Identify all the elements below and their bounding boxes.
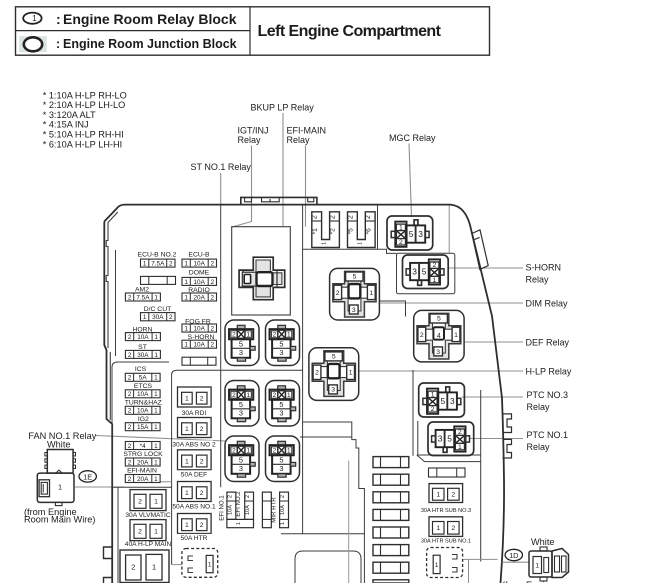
svg-text:7.5A: 7.5A — [151, 261, 165, 268]
svg-text:ETCS: ETCS — [134, 383, 153, 390]
svg-text:Engine Room Relay Block: Engine Room Relay Block — [63, 11, 237, 27]
svg-text:30A HTR SUB NO.1: 30A HTR SUB NO.1 — [421, 539, 471, 545]
svg-text:2: 2 — [128, 294, 132, 301]
svg-text:30A RDI: 30A RDI — [182, 410, 207, 417]
svg-text:10A: 10A — [245, 505, 251, 515]
svg-text:2: 2 — [312, 215, 319, 219]
svg-text:20A: 20A — [137, 476, 149, 483]
svg-text:2: 2 — [200, 458, 204, 465]
svg-text:1: 1 — [349, 370, 353, 377]
svg-text:MIR HTR: MIR HTR — [271, 497, 278, 523]
svg-text:50A DEF: 50A DEF — [181, 471, 207, 478]
svg-text:2: 2 — [431, 406, 435, 413]
svg-text:2: 2 — [128, 424, 132, 431]
svg-text:EFI NO.1: EFI NO.1 — [218, 495, 225, 521]
svg-text:EFI-MAIN: EFI-MAIN — [127, 468, 157, 475]
svg-text:2: 2 — [128, 459, 132, 466]
svg-text::: : — [56, 37, 60, 51]
svg-text:5: 5 — [353, 274, 357, 281]
svg-text:2: 2 — [169, 261, 173, 268]
svg-text:3: 3 — [412, 266, 417, 276]
svg-text:1: 1 — [154, 408, 158, 415]
svg-text:* 6:10A H-LP LH-HI: * 6:10A H-LP LH-HI — [43, 139, 123, 149]
svg-text:S-HORN: S-HORN — [526, 263, 562, 273]
svg-text:2: 2 — [227, 495, 233, 498]
svg-text:3: 3 — [331, 387, 335, 394]
svg-text:3: 3 — [352, 307, 356, 314]
svg-text:1: 1 — [184, 279, 188, 286]
svg-text:10A: 10A — [137, 391, 149, 398]
svg-text:2: 2 — [315, 370, 319, 377]
svg-text:10A: 10A — [194, 342, 206, 349]
svg-text:Relay: Relay — [238, 135, 262, 145]
svg-text:50A HTR: 50A HTR — [181, 535, 208, 542]
svg-text:1: 1 — [154, 352, 158, 359]
svg-text:1: 1 — [152, 563, 156, 572]
svg-text:2: 2 — [128, 352, 132, 359]
svg-text:* 2:10A H-LP LH-LO: * 2:10A H-LP LH-LO — [43, 100, 126, 110]
svg-text:IGT/INJ: IGT/INJ — [238, 126, 269, 136]
svg-text:3: 3 — [418, 229, 423, 239]
svg-text:2: 2 — [365, 215, 372, 219]
svg-text:10A: 10A — [227, 505, 233, 515]
svg-text:Left Engine Compartment: Left Engine Compartment — [258, 23, 442, 40]
svg-text:4: 4 — [437, 333, 441, 340]
svg-text:DEF Relay: DEF Relay — [526, 338, 570, 348]
svg-text:1D: 1D — [509, 551, 518, 560]
svg-text:Relay: Relay — [526, 275, 550, 285]
svg-text:1: 1 — [154, 334, 158, 341]
svg-text:2: 2 — [211, 294, 215, 301]
svg-text:1: 1 — [208, 562, 212, 569]
svg-text:2: 2 — [128, 375, 132, 382]
svg-text:5: 5 — [332, 354, 336, 361]
svg-text:30A ABS NO 2: 30A ABS NO 2 — [172, 441, 216, 448]
svg-text:1: 1 — [184, 294, 188, 301]
svg-text:3: 3 — [450, 396, 455, 406]
svg-text:1: 1 — [154, 443, 158, 450]
svg-text:Relay: Relay — [527, 442, 551, 452]
svg-text:1: 1 — [433, 277, 437, 284]
svg-text:1: 1 — [185, 426, 189, 433]
svg-text:1: 1 — [154, 391, 158, 398]
svg-text:2: 2 — [245, 495, 251, 498]
svg-text:* 1:10A H-LP RH-LO: * 1:10A H-LP RH-LO — [43, 90, 127, 100]
svg-text:BKUP LP Relay: BKUP LP Relay — [251, 103, 315, 113]
svg-text:DIM Relay: DIM Relay — [526, 299, 569, 309]
svg-text:2: 2 — [128, 408, 132, 415]
svg-text:10A: 10A — [137, 334, 149, 341]
svg-text:2: 2 — [138, 499, 142, 506]
svg-text:1: 1 — [185, 458, 189, 465]
svg-text:MGC Relay: MGC Relay — [389, 133, 436, 143]
svg-text:1: 1 — [435, 562, 439, 569]
svg-text:5: 5 — [440, 396, 445, 406]
svg-text:1: 1 — [535, 563, 539, 570]
svg-text:* 3:120A ALT: * 3:120A ALT — [43, 110, 96, 120]
svg-text:1: 1 — [32, 14, 37, 23]
svg-text:PTC NO.1: PTC NO.1 — [527, 430, 569, 440]
svg-text:H-LP Relay: H-LP Relay — [526, 367, 572, 377]
svg-text:White: White — [47, 440, 71, 450]
svg-text:1: 1 — [185, 490, 189, 497]
svg-text:1: 1 — [154, 459, 158, 466]
svg-text:1: 1 — [236, 522, 242, 525]
svg-text:Engine Room Junction Block: Engine Room Junction Block — [63, 37, 237, 51]
svg-text:D/C CUT: D/C CUT — [144, 306, 172, 313]
svg-text:2: 2 — [211, 279, 215, 286]
svg-text:White: White — [531, 537, 555, 547]
svg-text:2: 2 — [128, 476, 132, 483]
svg-text:2: 2 — [138, 529, 142, 536]
svg-text:2: 2 — [131, 563, 135, 572]
svg-text:1: 1 — [458, 444, 462, 451]
svg-text:1: 1 — [357, 242, 363, 245]
svg-text:1: 1 — [322, 242, 328, 245]
svg-text:2: 2 — [336, 290, 340, 297]
svg-text:ST NO.1 Relay: ST NO.1 Relay — [191, 162, 252, 172]
svg-text::: : — [56, 11, 61, 27]
svg-text:1: 1 — [143, 314, 147, 321]
svg-text:2: 2 — [280, 495, 286, 498]
svg-text:1: 1 — [143, 261, 147, 268]
svg-text:50A ABS NO.1: 50A ABS NO.1 — [172, 503, 216, 510]
svg-text:20A: 20A — [194, 294, 206, 301]
svg-text:TURN&HAZ: TURN&HAZ — [125, 399, 162, 406]
svg-text:Relay: Relay — [527, 402, 551, 412]
svg-text:1E: 1E — [83, 472, 92, 481]
svg-text:1: 1 — [58, 483, 62, 492]
svg-text:5: 5 — [437, 316, 441, 323]
svg-text:IG2: IG2 — [138, 416, 149, 423]
svg-text:1: 1 — [154, 294, 158, 301]
svg-text:1: 1 — [154, 424, 158, 431]
svg-text:*6: *6 — [365, 228, 372, 235]
svg-text:10A: 10A — [194, 279, 206, 286]
svg-text:10A: 10A — [137, 408, 149, 415]
svg-text:1: 1 — [436, 492, 440, 499]
svg-text:Room Main Wire): Room Main Wire) — [24, 515, 95, 525]
svg-text:3: 3 — [438, 433, 443, 443]
svg-text:3: 3 — [436, 349, 440, 356]
svg-text:2: 2 — [211, 342, 215, 349]
svg-text:*1: *1 — [312, 228, 319, 235]
svg-text:2: 2 — [451, 492, 455, 499]
svg-text:10A: 10A — [280, 505, 286, 515]
svg-text:5: 5 — [409, 229, 414, 239]
svg-text:ICS: ICS — [135, 366, 147, 373]
svg-text:2: 2 — [200, 426, 204, 433]
svg-text:STRG LOCK: STRG LOCK — [123, 451, 163, 458]
svg-text:1: 1 — [185, 396, 189, 403]
svg-text:30A: 30A — [137, 352, 149, 359]
svg-text:DOME: DOME — [189, 269, 210, 276]
svg-text:2: 2 — [451, 525, 455, 532]
svg-text:2: 2 — [128, 334, 132, 341]
svg-text:* 5:10A H-LP RH-HI: * 5:10A H-LP RH-HI — [43, 130, 124, 140]
svg-text:2: 2 — [347, 215, 354, 219]
svg-text:20A: 20A — [137, 459, 149, 466]
svg-text:10A: 10A — [194, 325, 206, 332]
svg-text:2: 2 — [200, 490, 204, 497]
svg-text:2: 2 — [211, 325, 215, 332]
svg-text:1: 1 — [184, 325, 188, 332]
svg-text:1: 1 — [369, 290, 373, 297]
svg-text:1: 1 — [154, 529, 158, 536]
svg-text:1: 1 — [436, 525, 440, 532]
svg-text:ECU-B NO.2: ECU-B NO.2 — [138, 251, 177, 258]
svg-text:Relay: Relay — [287, 135, 311, 145]
svg-text:EFI NO.2: EFI NO.2 — [235, 491, 242, 517]
svg-text:1: 1 — [454, 332, 458, 339]
svg-text:* 4:15A INJ: * 4:15A INJ — [43, 120, 89, 130]
svg-text:1: 1 — [154, 499, 158, 506]
svg-text:15A: 15A — [137, 424, 149, 431]
svg-text:1: 1 — [184, 261, 188, 268]
svg-text:1: 1 — [154, 476, 158, 483]
svg-text:1: 1 — [184, 342, 188, 349]
svg-text:5: 5 — [447, 433, 452, 443]
svg-text:2: 2 — [330, 215, 337, 219]
svg-text:5: 5 — [422, 266, 427, 276]
svg-text:30A: 30A — [152, 314, 164, 321]
svg-text:*4: *4 — [140, 443, 146, 450]
svg-text:2: 2 — [169, 314, 173, 321]
svg-text:2: 2 — [128, 391, 132, 398]
svg-text:2: 2 — [200, 522, 204, 529]
svg-text:30A VLVMATIC: 30A VLVMATIC — [125, 512, 170, 519]
svg-text:2: 2 — [399, 239, 403, 246]
svg-text:*2: *2 — [330, 228, 337, 235]
svg-text:7.5A: 7.5A — [136, 294, 150, 301]
svg-text:10A: 10A — [194, 261, 206, 268]
svg-text:EFI-MAIN: EFI-MAIN — [287, 126, 327, 136]
svg-text:2: 2 — [128, 443, 132, 450]
svg-text:1: 1 — [280, 522, 286, 525]
svg-text:2: 2 — [200, 396, 204, 403]
svg-text:*5: *5 — [348, 228, 355, 235]
svg-text:1: 1 — [154, 375, 158, 382]
svg-text:1: 1 — [185, 522, 189, 529]
svg-text:40A H-LP MAIN: 40A H-LP MAIN — [125, 541, 172, 548]
svg-text:5A: 5A — [139, 375, 148, 382]
svg-text:30A HTR SUB NO.3: 30A HTR SUB NO.3 — [421, 508, 471, 514]
svg-text:ECU-B: ECU-B — [188, 251, 210, 258]
svg-text:2: 2 — [420, 332, 424, 339]
svg-text:PTC NO.3: PTC NO.3 — [527, 390, 569, 400]
svg-text:2: 2 — [211, 261, 215, 268]
